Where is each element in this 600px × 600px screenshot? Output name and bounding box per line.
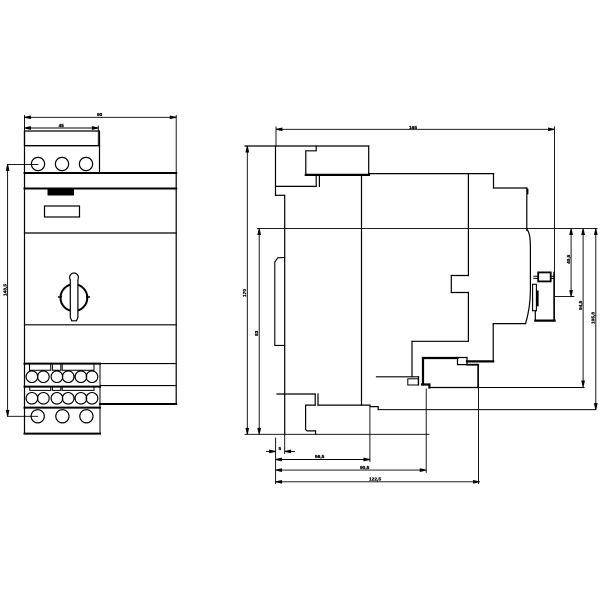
svg-text:40,5: 40,5: [566, 254, 572, 264]
svg-text:83: 83: [254, 330, 260, 336]
svg-text:5: 5: [279, 446, 282, 452]
svg-text:56,5: 56,5: [315, 454, 325, 460]
svg-text:148,5: 148,5: [2, 284, 8, 296]
svg-text:94,5: 94,5: [578, 300, 584, 310]
svg-text:90,5: 90,5: [360, 465, 370, 471]
svg-text:122,5: 122,5: [369, 477, 381, 483]
svg-text:105,8: 105,8: [591, 312, 597, 324]
svg-text:90: 90: [97, 112, 103, 118]
svg-text:165: 165: [409, 125, 417, 131]
svg-text:170: 170: [242, 289, 248, 297]
svg-text:45: 45: [59, 123, 65, 129]
svg-text:SIEMENS: SIEMENS: [49, 191, 73, 197]
